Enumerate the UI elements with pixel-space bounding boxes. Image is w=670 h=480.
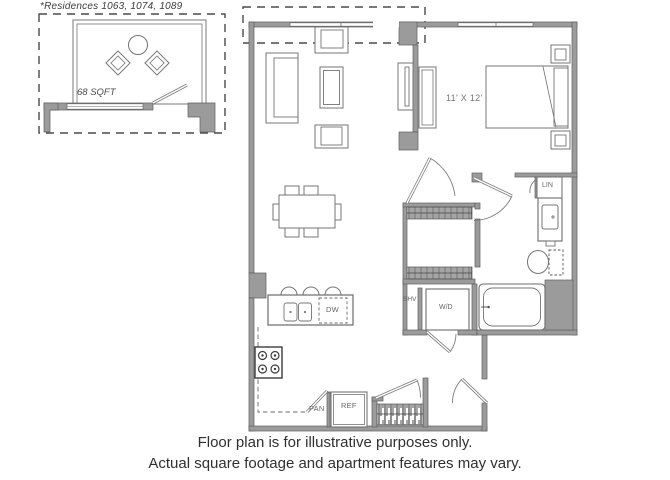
entry-door [452,379,487,403]
wall-closet-stub [475,203,480,209]
dining-chair [285,228,299,237]
wall-closet-bottom [403,279,475,284]
balcony-door [153,85,187,103]
hall-door [427,332,456,352]
wall-bedroom-bottom [515,173,577,177]
coat-closet-door [376,380,421,398]
dining-chair [335,204,341,220]
dishwasher-label: DW [326,306,339,314]
patio-table [129,36,148,55]
wall-left-upper [249,22,254,273]
patio-chair-right [145,51,169,75]
wall-tub-surround [545,280,573,330]
pantry-label: PAN [309,405,324,413]
bar-stool [303,287,319,295]
wall-hall-bottom [458,330,477,335]
bathroom-door [474,178,512,221]
patio-chair-left [106,51,130,75]
shelves-label: SHV [403,297,416,304]
wall-bath-bottom [477,330,577,335]
sofa [266,53,298,123]
wall-divider-top-block [399,22,417,45]
balcony-inset [39,14,225,133]
tv-console [398,63,413,110]
wall-bottom [249,426,487,431]
bedroom-door [407,158,455,203]
dining-furniture [273,186,341,237]
washer-dryer-label: W/D [439,304,453,311]
refrigerator-label: REF [341,402,357,410]
bar-stool [325,287,341,295]
dining-table [279,195,335,228]
wall-coat-closet-left [372,397,377,427]
wall-ref-stub [327,392,330,427]
bathtub [479,284,545,330]
vanity-sink [538,198,562,246]
inset-residences-note: *Residences 1063, 1074, 1089 [40,2,182,12]
bar-stool [281,287,297,295]
toilet [528,250,564,275]
linen-label: LIN [542,182,553,189]
bedroom-window [458,23,533,26]
disclaimer-line-1: Floor plan is for illustrative purposes … [0,434,670,451]
dining-chair [273,204,279,220]
floor-plan-page: *Residences 1063, 1074, 1089 68 SQFT 11'… [0,0,670,480]
inset-sqft-label: 68 SQFT [77,88,116,98]
bed [486,66,568,128]
balcony-door-opening [373,22,399,28]
wall-divider-bottom-block [399,132,418,150]
floor-plan-drawing [0,0,670,480]
inset-wall-left [44,103,58,132]
inset-wall-right [188,103,215,132]
dining-chair [304,186,318,195]
dining-chair [304,228,318,237]
bedroom-dimensions-label: 11' X 12' [446,94,483,103]
wall-closet-top [403,203,475,207]
disclaimer-line-2: Actual square footage and apartment feat… [0,455,670,472]
stove [255,347,282,378]
bedroom-furniture [419,45,570,149]
living-room-furniture [266,27,413,148]
wall-entry-right-upper [482,335,487,379]
wall-left-lower [249,298,254,431]
wall-coat-closet-right [423,378,428,427]
wall-entry-right-lower [482,403,487,431]
coat-closet-rod [377,404,423,425]
wall-closet-left [403,203,407,335]
wall-divider [413,45,418,132]
dining-chair [285,186,299,195]
wall-bath-left-lower [472,284,477,335]
wall-wd-bottom [403,330,427,335]
dresser [419,67,436,128]
wall-bath-left-mid [475,219,480,267]
wall-kitchen-block [249,273,266,298]
wall-shv-divider [418,288,422,330]
